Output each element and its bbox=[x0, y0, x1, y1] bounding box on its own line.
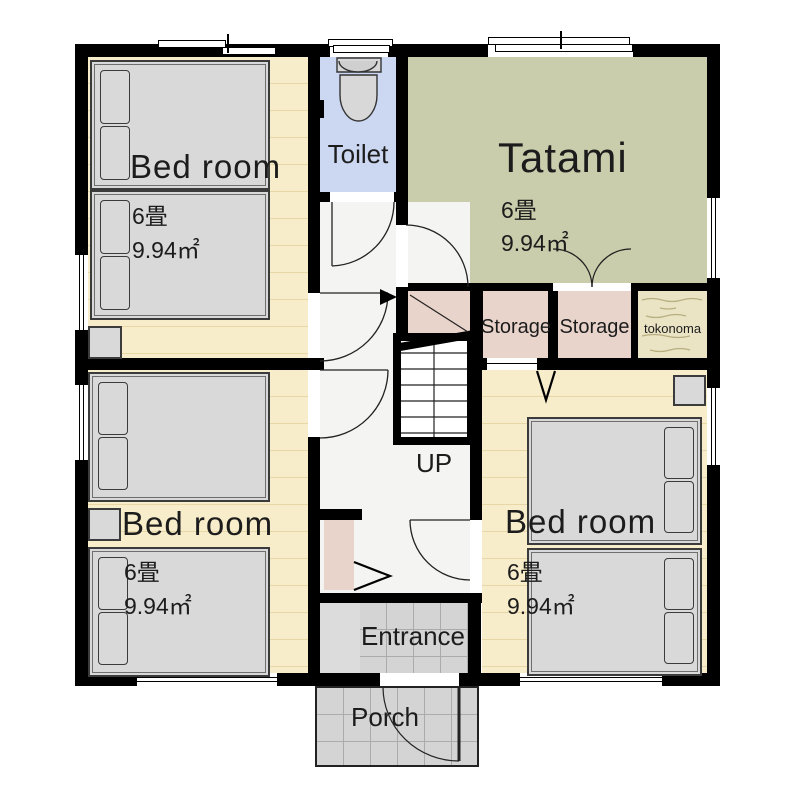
bedroom-bottom-left-tatami-count: 6畳 bbox=[124, 553, 160, 587]
pillow bbox=[664, 427, 694, 479]
window-top-bedroom-icon bbox=[158, 40, 226, 48]
tatami-room-area: 9.94㎡ bbox=[501, 224, 569, 258]
nightstand-top-left bbox=[88, 326, 122, 359]
pillow bbox=[98, 382, 128, 435]
pillow bbox=[98, 437, 128, 490]
storage-right-label: Storage bbox=[556, 316, 633, 339]
door-opening-bedroom-bottom-right bbox=[470, 520, 482, 593]
window-left-upper bbox=[75, 255, 88, 330]
bedroom-bottom-right-tatami-count: 6畳 bbox=[507, 553, 543, 587]
toilet-floor bbox=[320, 57, 396, 192]
hall-closet bbox=[324, 520, 354, 590]
window-left-lower bbox=[75, 385, 88, 460]
wall-entrance-north bbox=[308, 593, 482, 603]
door-opening-bedroom-bottom-left bbox=[308, 370, 320, 437]
pillow bbox=[100, 200, 130, 254]
wall-bedrooms-left-divider bbox=[75, 358, 324, 370]
pillow bbox=[100, 70, 130, 124]
wall-entrance-east bbox=[468, 603, 481, 673]
pillow bbox=[664, 558, 694, 610]
entrance-step bbox=[320, 603, 361, 673]
floor-plan: Bed room 6畳 9.94㎡ Toilet Tatami 6畳 9.94㎡… bbox=[0, 0, 800, 800]
window-right-tatami bbox=[707, 198, 720, 278]
tatami-room-label: Tatami bbox=[498, 134, 628, 182]
pillow bbox=[100, 126, 130, 180]
porch-label: Porch bbox=[315, 702, 455, 733]
window-tatami-icon2 bbox=[495, 44, 633, 52]
door-opening-storage-left bbox=[487, 358, 537, 370]
window-toilet-icon2 bbox=[333, 45, 390, 53]
bed-bottom-left-1 bbox=[88, 372, 270, 502]
door-opening-tatami bbox=[396, 225, 408, 287]
pillow bbox=[100, 256, 130, 310]
nightstand-bottom-left bbox=[88, 508, 121, 541]
bedroom-top-left-area: 9.94㎡ bbox=[132, 231, 200, 265]
bedroom-bottom-right-label: Bed room bbox=[505, 503, 656, 541]
toilet-label: Toilet bbox=[320, 139, 396, 170]
window-top-bedroom-icon2 bbox=[222, 47, 276, 55]
wall-hall-closet-stub bbox=[320, 509, 362, 520]
stair-treads-area bbox=[401, 341, 467, 437]
door-opening-toilet bbox=[330, 192, 394, 202]
bedroom-bottom-right-area: 9.94㎡ bbox=[507, 587, 575, 621]
pillow bbox=[664, 481, 694, 533]
front-door-opening bbox=[380, 673, 459, 686]
door-opening-bedroom-top-left bbox=[308, 293, 320, 358]
bedroom-top-left-label: Bed room bbox=[130, 148, 281, 186]
bedroom-bottom-left-area: 9.94㎡ bbox=[124, 587, 192, 621]
tokonoma-label: tokonoma bbox=[638, 321, 707, 336]
nightstand-bottom-right bbox=[673, 375, 706, 406]
window-right-bedroom bbox=[707, 388, 720, 465]
bedroom-bottom-left-label: Bed room bbox=[122, 505, 273, 543]
stairs-up-label: UP bbox=[393, 448, 475, 479]
bedroom-top-left-tatami-count: 6畳 bbox=[132, 197, 168, 231]
window-tatami-tick bbox=[560, 31, 562, 49]
door-opening-storage-double bbox=[553, 283, 631, 291]
tatami-room-tatami-count: 6畳 bbox=[501, 191, 537, 225]
pillow bbox=[664, 612, 694, 664]
storage-left-label: Storage bbox=[481, 316, 550, 339]
window-top-bedroom-tick bbox=[227, 34, 229, 53]
entrance-label: Entrance bbox=[358, 621, 468, 652]
